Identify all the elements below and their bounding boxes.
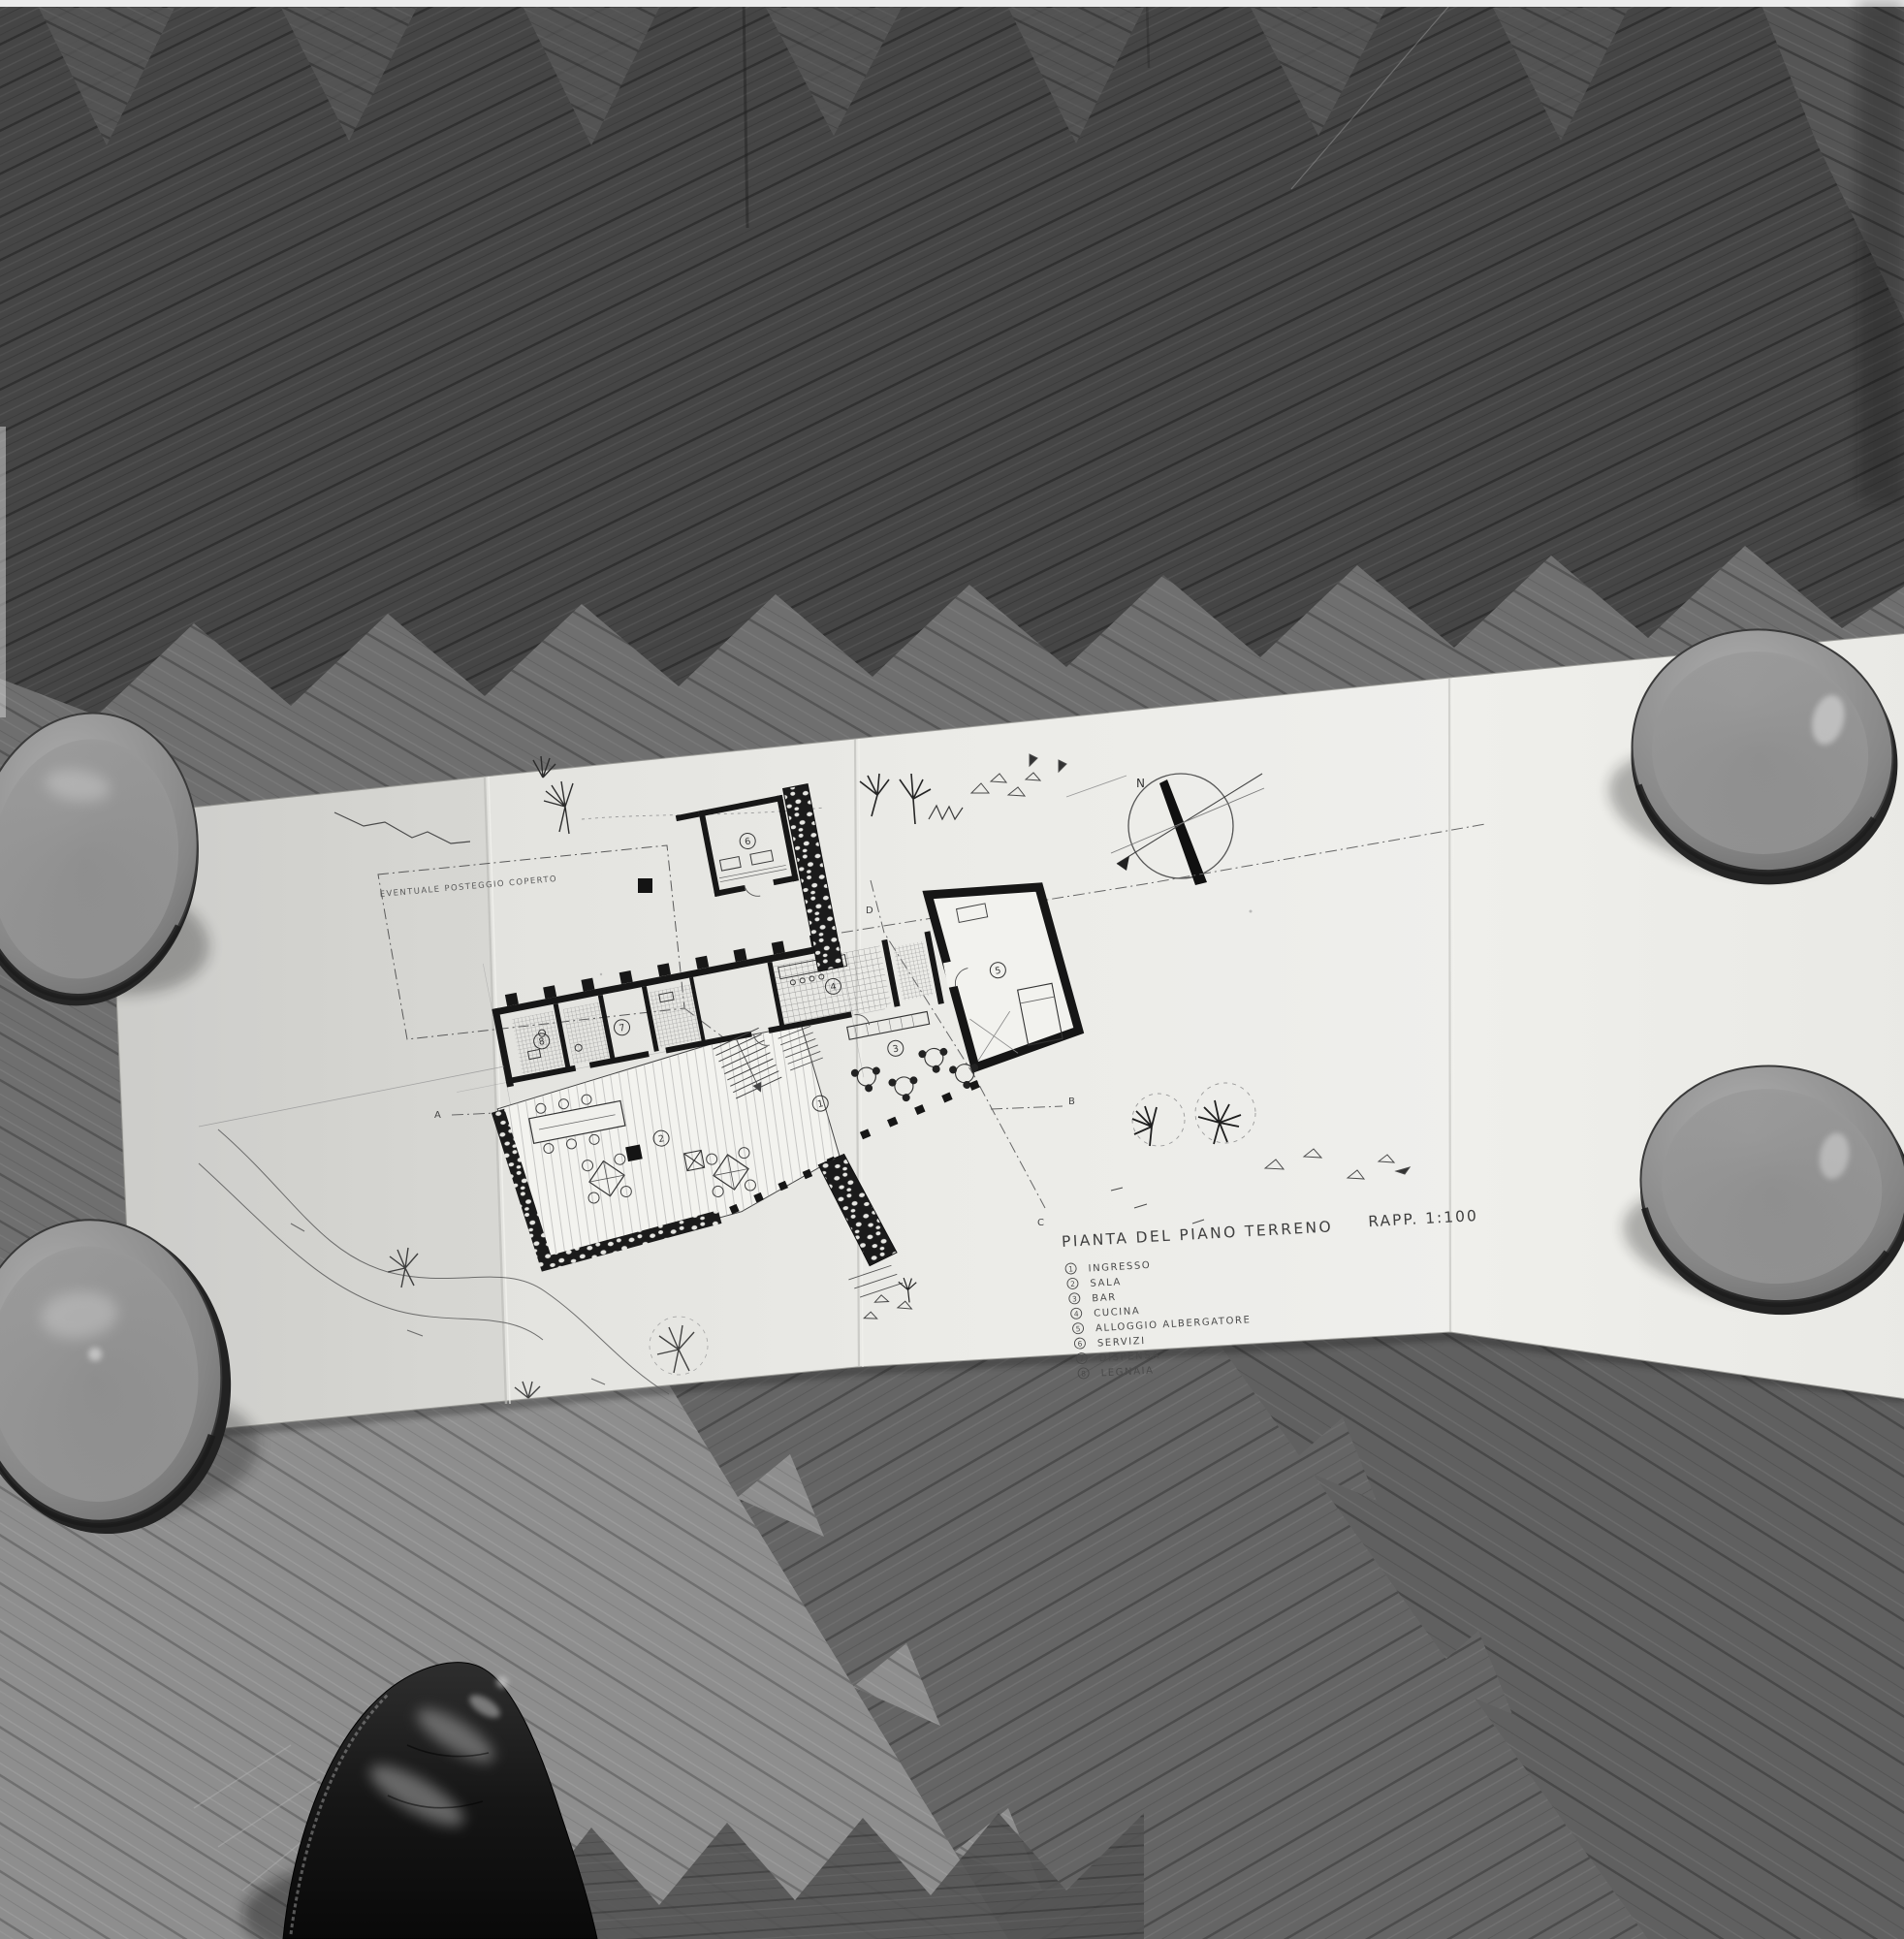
svg-text:3: 3: [1072, 1294, 1077, 1303]
paper-right-panel-light: [855, 678, 1450, 1367]
svg-text:6: 6: [1077, 1339, 1082, 1348]
svg-text:2: 2: [1070, 1280, 1075, 1288]
column: [625, 1144, 643, 1161]
section-marker-a: A: [434, 1110, 441, 1121]
section-marker-d: D: [866, 906, 873, 916]
compass-north-label: N: [1136, 777, 1145, 790]
column-mark: [638, 878, 652, 893]
edge-vignette: [1857, 0, 1904, 504]
svg-text:5: 5: [1075, 1324, 1080, 1333]
section-marker-b: B: [1068, 1097, 1075, 1107]
svg-text:4: 4: [1074, 1310, 1079, 1319]
svg-text:8: 8: [1081, 1369, 1086, 1378]
svg-text:SALA: SALA: [1090, 1277, 1122, 1289]
svg-text:BAR: BAR: [1092, 1292, 1117, 1304]
svg-text:7: 7: [1079, 1354, 1084, 1363]
section-marker-c: C: [1037, 1218, 1044, 1228]
film-border-top: [0, 0, 1904, 7]
photograph: N EVENTUALE POSTEGGIO COPERTO A B C D: [0, 0, 1904, 1939]
film-border-left: [0, 427, 6, 717]
svg-text:1: 1: [1068, 1264, 1073, 1273]
photo-canvas: N EVENTUALE POSTEGGIO COPERTO A B C D: [0, 0, 1904, 1939]
